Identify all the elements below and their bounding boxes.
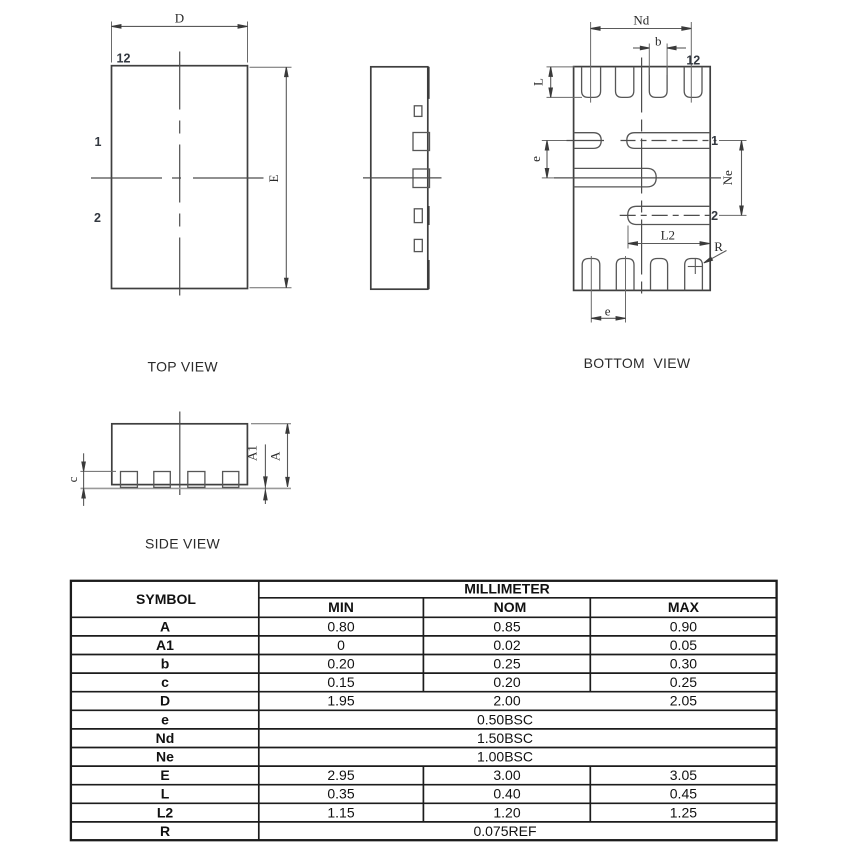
svg-text:e: e bbox=[605, 304, 611, 319]
svg-text:A1: A1 bbox=[156, 637, 174, 653]
svg-text:Nd: Nd bbox=[633, 13, 649, 28]
svg-text:0.85: 0.85 bbox=[493, 618, 520, 634]
svg-text:12: 12 bbox=[686, 54, 700, 68]
svg-text:1.50BSC: 1.50BSC bbox=[477, 730, 533, 746]
svg-text:NOM: NOM bbox=[494, 599, 527, 615]
svg-text:A: A bbox=[268, 451, 283, 461]
svg-text:L2: L2 bbox=[661, 228, 675, 243]
svg-text:e: e bbox=[161, 711, 169, 727]
svg-text:0.05: 0.05 bbox=[670, 637, 697, 653]
svg-text:c: c bbox=[161, 674, 169, 690]
svg-text:D: D bbox=[175, 11, 184, 26]
svg-text:3.05: 3.05 bbox=[670, 767, 697, 783]
svg-text:0: 0 bbox=[337, 637, 345, 653]
svg-text:MIN: MIN bbox=[328, 599, 354, 615]
svg-text:2.95: 2.95 bbox=[327, 767, 354, 783]
svg-text:0.075REF: 0.075REF bbox=[473, 823, 536, 839]
svg-text:0.25: 0.25 bbox=[493, 656, 520, 672]
svg-text:0.30: 0.30 bbox=[670, 656, 697, 672]
svg-text:MAX: MAX bbox=[668, 599, 700, 615]
svg-text:12: 12 bbox=[117, 51, 131, 65]
svg-text:R: R bbox=[160, 823, 170, 839]
svg-text:D: D bbox=[160, 693, 170, 709]
svg-text:1: 1 bbox=[95, 135, 102, 149]
svg-text:E: E bbox=[160, 767, 169, 783]
svg-text:3.00: 3.00 bbox=[493, 767, 520, 783]
svg-text:1.20: 1.20 bbox=[493, 804, 520, 820]
svg-text:0.80: 0.80 bbox=[327, 618, 354, 634]
svg-text:0.15: 0.15 bbox=[327, 674, 354, 690]
svg-text:Ne: Ne bbox=[156, 749, 174, 765]
svg-text:MILLIMETER: MILLIMETER bbox=[464, 580, 550, 596]
svg-text:R: R bbox=[714, 239, 723, 254]
svg-text:Nd: Nd bbox=[156, 730, 175, 746]
svg-text:SYMBOL: SYMBOL bbox=[136, 591, 196, 607]
svg-text:1.25: 1.25 bbox=[670, 804, 697, 820]
svg-text:e: e bbox=[528, 156, 543, 162]
svg-text:0.20: 0.20 bbox=[327, 656, 354, 672]
svg-text:0.25: 0.25 bbox=[670, 674, 697, 690]
svg-text:2: 2 bbox=[94, 211, 101, 225]
svg-text:Ne: Ne bbox=[720, 170, 735, 185]
svg-text:1.95: 1.95 bbox=[327, 693, 354, 709]
svg-text:1.15: 1.15 bbox=[327, 804, 354, 820]
svg-text:A: A bbox=[160, 618, 170, 634]
svg-text:0.50BSC: 0.50BSC bbox=[477, 711, 533, 727]
svg-text:L: L bbox=[531, 78, 546, 86]
svg-text:TOP VIEW: TOP VIEW bbox=[148, 359, 219, 375]
svg-text:2.00: 2.00 bbox=[493, 693, 520, 709]
svg-text:b: b bbox=[161, 656, 170, 672]
svg-text:0.90: 0.90 bbox=[670, 618, 697, 634]
svg-text:2: 2 bbox=[711, 209, 718, 223]
svg-text:A1: A1 bbox=[245, 445, 260, 461]
svg-text:0.02: 0.02 bbox=[493, 637, 520, 653]
svg-text:E: E bbox=[266, 174, 281, 182]
svg-text:c: c bbox=[65, 476, 80, 482]
svg-text:BOTTOM VIEW: BOTTOM VIEW bbox=[584, 355, 691, 371]
svg-text:1.00BSC: 1.00BSC bbox=[477, 749, 533, 765]
svg-text:0.35: 0.35 bbox=[327, 786, 354, 802]
svg-text:L2: L2 bbox=[157, 804, 174, 820]
svg-text:2.05: 2.05 bbox=[670, 693, 697, 709]
svg-text:0.45: 0.45 bbox=[670, 786, 697, 802]
svg-text:0.20: 0.20 bbox=[493, 674, 520, 690]
svg-text:L: L bbox=[161, 786, 170, 802]
svg-text:1: 1 bbox=[711, 134, 718, 148]
svg-text:b: b bbox=[655, 34, 662, 49]
svg-text:0.40: 0.40 bbox=[493, 786, 520, 802]
svg-text:SIDE VIEW: SIDE VIEW bbox=[145, 536, 221, 552]
